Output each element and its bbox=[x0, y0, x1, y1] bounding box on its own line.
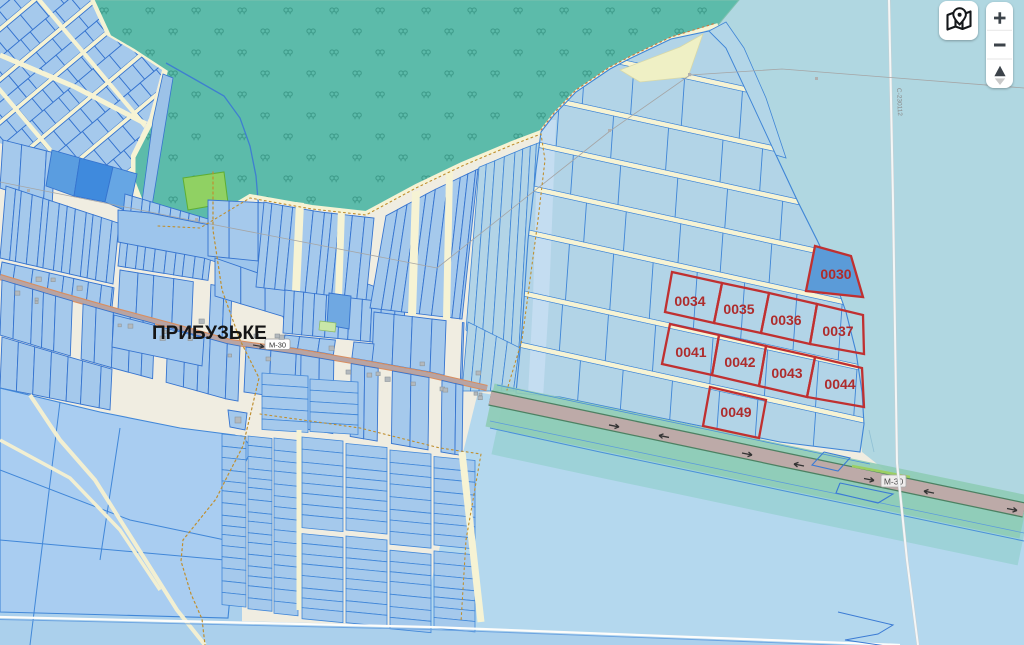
svg-text:0037: 0037 bbox=[822, 323, 853, 339]
svg-text:М-30: М-30 bbox=[269, 341, 286, 350]
svg-text:0042: 0042 bbox=[724, 354, 755, 370]
svg-text:0043: 0043 bbox=[771, 365, 802, 381]
svg-text:0034: 0034 bbox=[674, 293, 705, 309]
svg-text:0035: 0035 bbox=[723, 301, 754, 317]
svg-text:0030: 0030 bbox=[820, 266, 851, 282]
svg-text:0036: 0036 bbox=[770, 312, 801, 328]
svg-text:С-230112: С-230112 bbox=[895, 88, 903, 117]
svg-text:ПРИБУЗЬКЕ: ПРИБУЗЬКЕ bbox=[152, 323, 267, 344]
svg-text:0044: 0044 bbox=[824, 376, 855, 392]
svg-text:0049: 0049 bbox=[720, 404, 751, 420]
svg-text:0041: 0041 bbox=[675, 344, 706, 360]
